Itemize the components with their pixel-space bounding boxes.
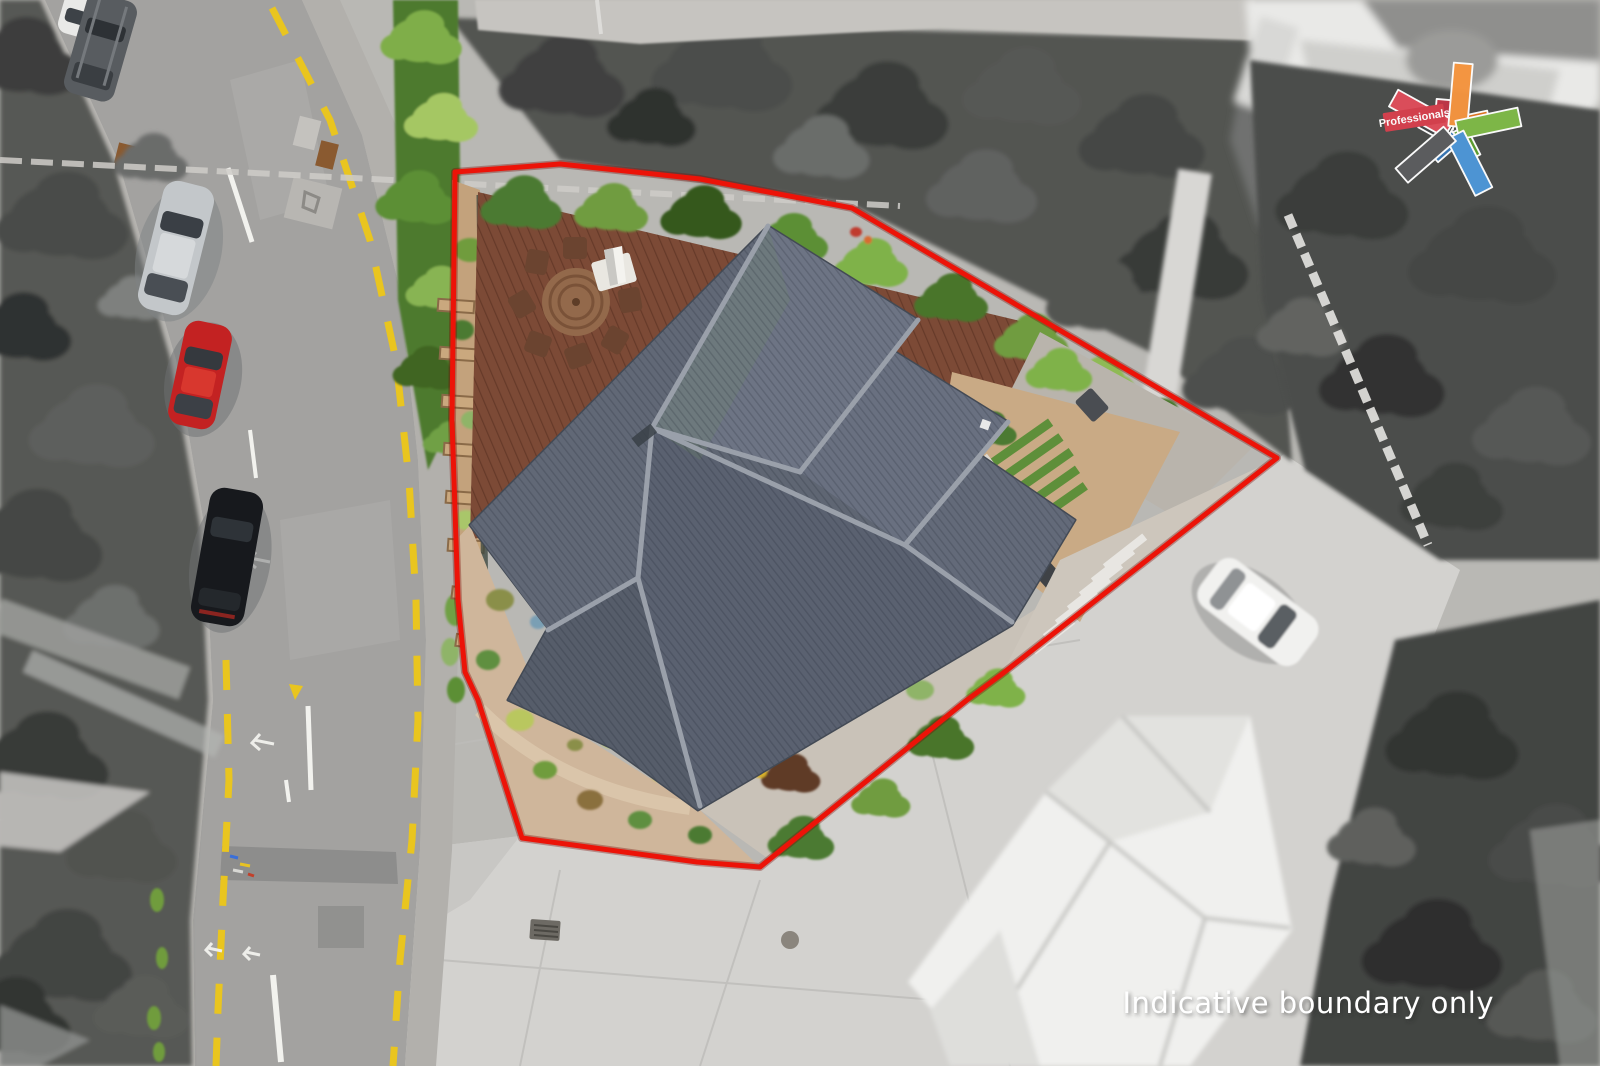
watermark-text: Indicative boundary only	[1123, 986, 1495, 1020]
aerial-photo: Professionals Indicative boundary only I…	[0, 0, 1600, 1066]
aerial-photo-stage: Professionals Indicative boundary only I…	[0, 0, 1600, 1066]
watermark: Indicative boundary only Indicative boun…	[1123, 986, 1497, 1022]
